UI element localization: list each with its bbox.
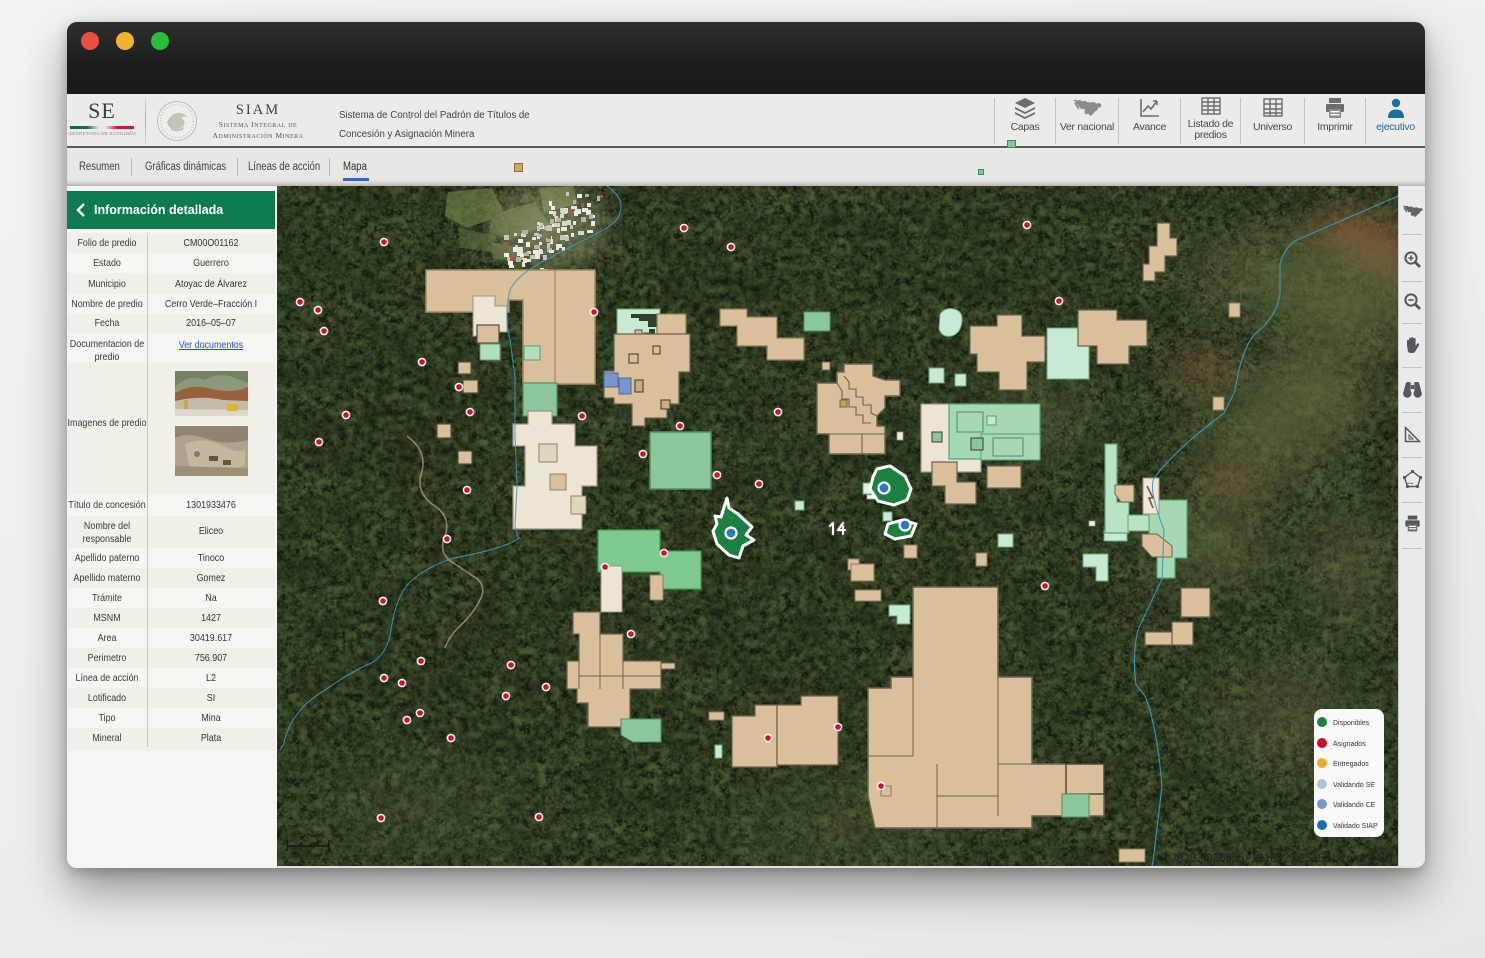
svg-text:Validado SIAP: Validado SIAP (1333, 823, 1378, 830)
svg-text:Validando SE: Validando SE (1333, 782, 1375, 789)
svg-text:Validando CE: Validando CE (1333, 802, 1376, 809)
svg-text:-73253.026555, 1918527.251591: -73253.026555, 1918527.251591 zona 14 N (1167, 853, 1393, 865)
svg-text:1:300000: 1:300000 (291, 853, 317, 859)
svg-text:Disponibles: Disponibles (1333, 720, 1370, 727)
svg-text:Asignados: Asignados (1333, 741, 1366, 748)
svg-text:Entregados: Entregados (1333, 761, 1369, 768)
